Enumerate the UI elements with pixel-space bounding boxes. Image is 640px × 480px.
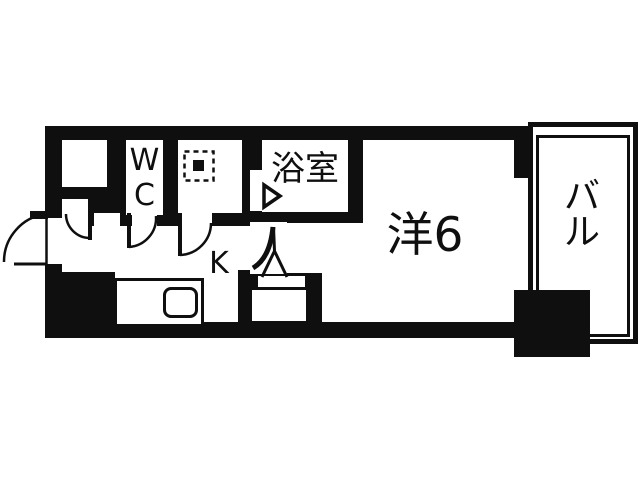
- room-label-wc: WC: [126, 143, 163, 213]
- room-label-balcony: バル: [558, 179, 606, 251]
- closet-door-arc: [66, 214, 90, 238]
- room-label-bathroom: 浴室: [262, 151, 348, 187]
- floor-plan: WC 浴室 洋6 K バル: [0, 0, 640, 480]
- room-label-kitchen: K: [204, 248, 234, 280]
- washing-machine-center-mark: [193, 160, 204, 171]
- room-label-western: 洋6: [355, 211, 495, 261]
- western-room-door-panel: [274, 227, 275, 251]
- wc-door-arc: [129, 216, 156, 247]
- entrance-door-arc: [4, 214, 46, 262]
- symbol-overlay: [0, 0, 640, 480]
